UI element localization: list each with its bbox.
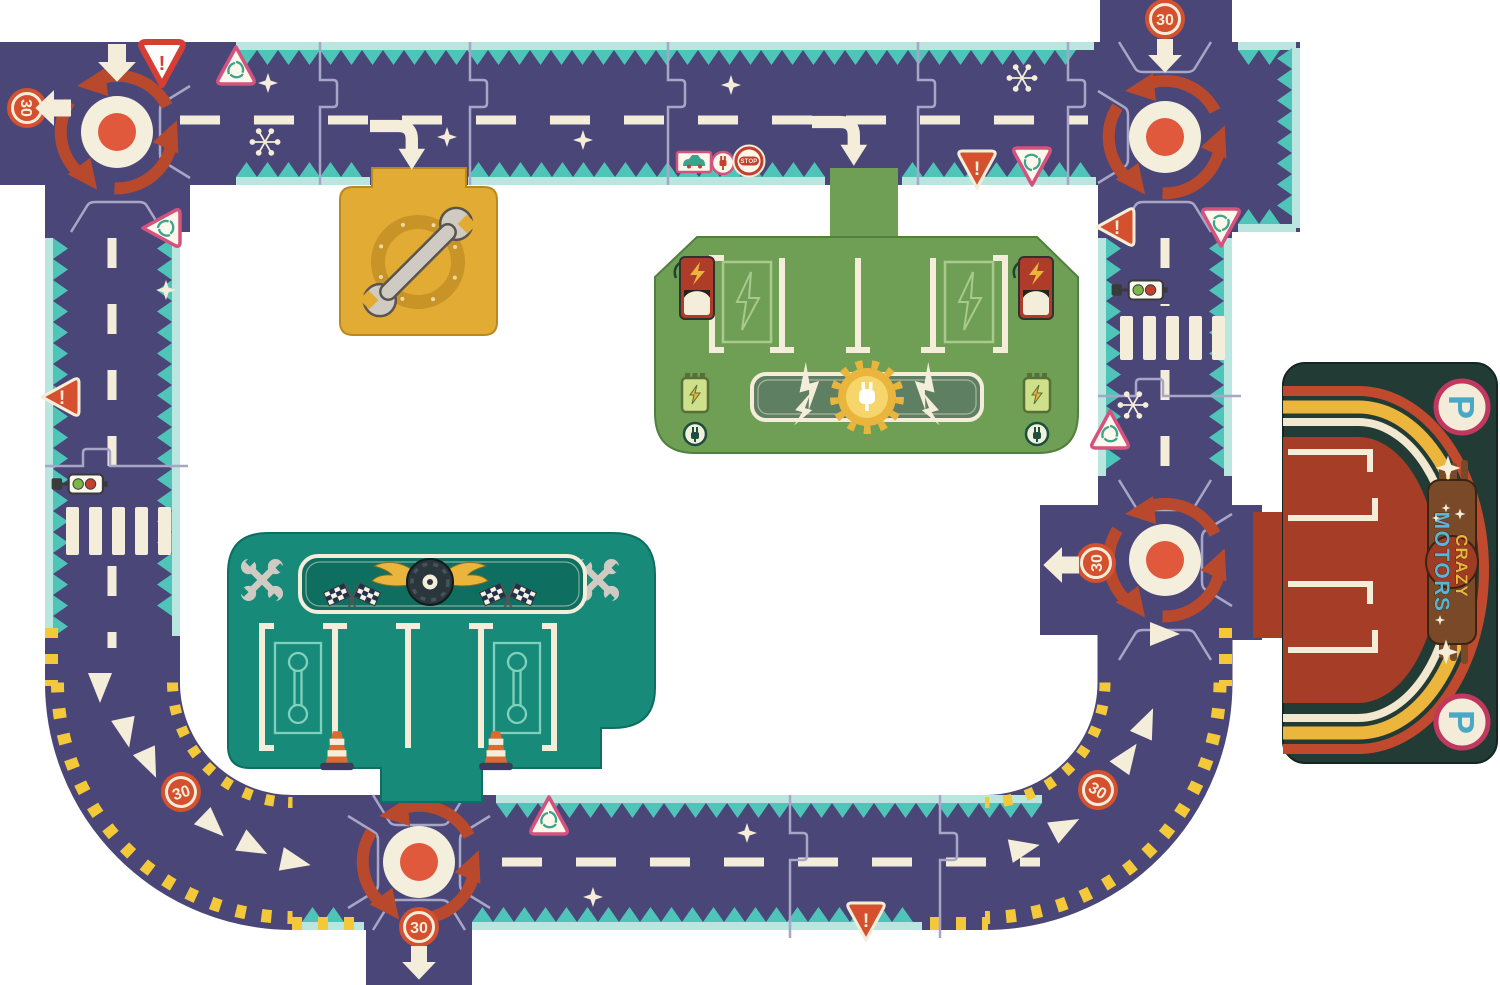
crazy-motors-logo: CRAZY MOTORS xyxy=(1426,460,1478,664)
logo-line1: CRAZY xyxy=(1452,534,1471,598)
warning-label: ! xyxy=(974,159,980,180)
zigzag-band xyxy=(472,922,922,930)
speed-limit-label: 30 xyxy=(1156,12,1174,29)
parking-lot xyxy=(1283,437,1438,703)
parking-piece[interactable]: CRAZY MOTORS P P xyxy=(1253,363,1497,763)
ring-rivet xyxy=(432,223,436,227)
speed-limit-label: 30 xyxy=(1089,554,1106,572)
speed-limit-sign-top-right: 30 xyxy=(1145,0,1185,39)
zigzag-band xyxy=(172,238,180,636)
repair-garage-piece[interactable] xyxy=(228,533,655,802)
ring-rivet xyxy=(400,297,404,301)
zigzag-band xyxy=(1292,48,1300,228)
ring-rivet xyxy=(401,223,405,227)
parking-badge-label: P xyxy=(1441,395,1482,419)
speed-limit-label: 30 xyxy=(410,920,428,937)
parking-badge-label: P xyxy=(1441,710,1482,734)
zigzag-band xyxy=(1238,224,1296,232)
warning-label: ! xyxy=(159,53,166,75)
zigzag-band xyxy=(236,42,1094,50)
stop-label: STOP xyxy=(740,159,757,165)
warning-label: ! xyxy=(59,388,65,409)
logo-line2: MOTORS xyxy=(1430,512,1453,613)
zigzag-band xyxy=(1238,42,1296,50)
zigzag-band xyxy=(45,238,53,638)
plug-icon-right xyxy=(1026,423,1048,445)
speed-limit-label: 30 xyxy=(17,99,34,117)
car-sign xyxy=(677,152,711,172)
zigzag-band xyxy=(468,177,825,185)
parking-badge-bottom: P xyxy=(1436,696,1488,748)
speed-limit-sign-bottom: 30 xyxy=(399,907,439,947)
speed-limit-sign-right-middle: 30 xyxy=(1076,543,1116,583)
ring-rivet xyxy=(431,297,435,301)
warning-label: ! xyxy=(863,911,869,932)
warning-label: ! xyxy=(1114,218,1120,239)
plug-sign xyxy=(712,152,734,174)
plug-icon xyxy=(720,160,727,166)
charging-pump-left xyxy=(675,257,714,319)
battery-icon-left xyxy=(682,373,708,412)
zigzag-band xyxy=(236,177,370,185)
garage-sign-piece[interactable] xyxy=(340,168,497,335)
charging-pump-right xyxy=(1014,257,1053,319)
ring-rivet xyxy=(453,245,457,249)
stop-sign: STOP xyxy=(734,146,765,177)
battery-icon-right xyxy=(1024,373,1050,412)
ring-rivet xyxy=(379,244,383,248)
parking-badge-top: P xyxy=(1436,381,1488,433)
zigzag-band xyxy=(302,922,364,930)
zigzag-band xyxy=(1224,238,1232,476)
garage-banner xyxy=(300,556,585,617)
plug-icon-left xyxy=(684,423,706,445)
zigzag-edge xyxy=(468,162,825,177)
ring-rivet xyxy=(379,275,383,279)
ring-rivet xyxy=(453,276,457,280)
charging-station-piece[interactable] xyxy=(655,168,1078,453)
zigzag-band xyxy=(496,795,1042,803)
puzzle-board: CRAZY MOTORS P P 30 30 30 30 xyxy=(0,0,1500,985)
crazy-motors-road-circuit: CRAZY MOTORS P P 30 30 30 30 xyxy=(0,0,1500,985)
